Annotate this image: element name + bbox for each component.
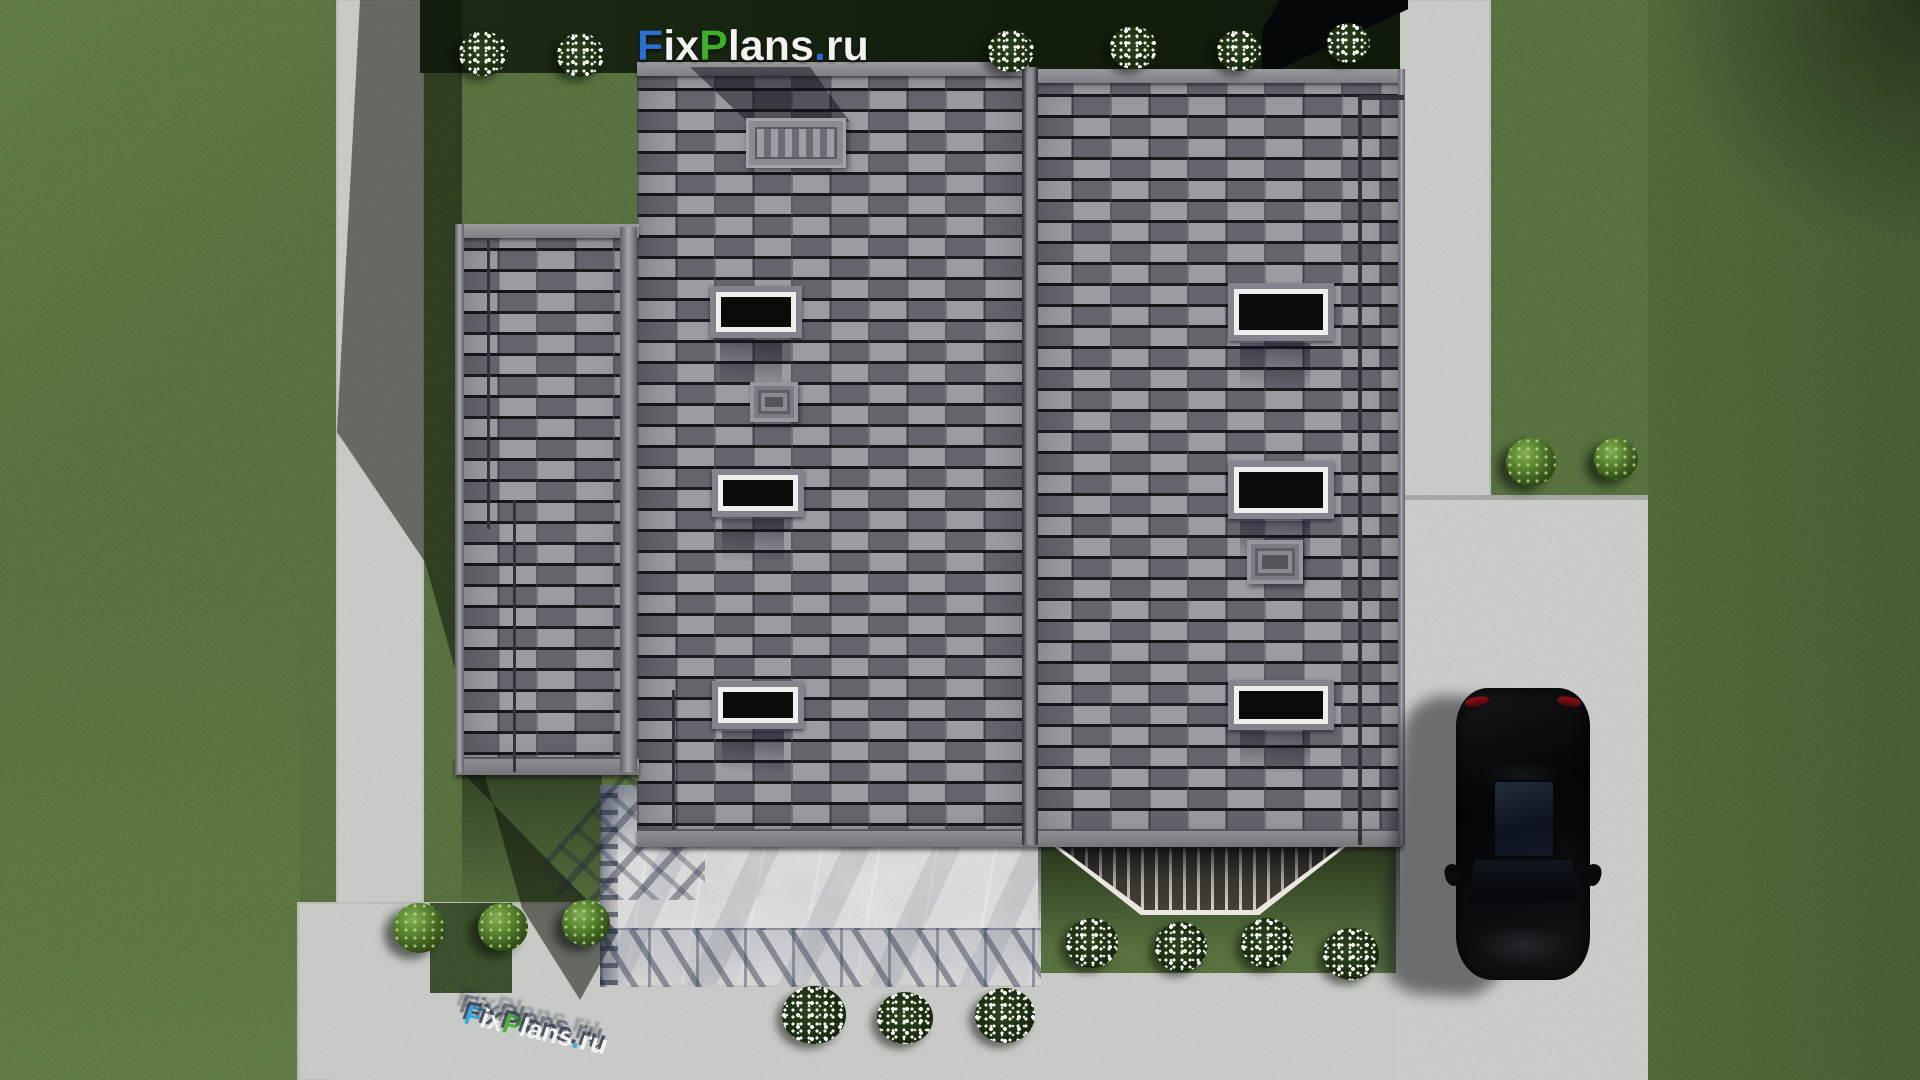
- car-windshield: [1467, 860, 1579, 902]
- flower-bed: [1327, 23, 1370, 63]
- flower-bed: [459, 31, 508, 76]
- roof-window-glass: [718, 687, 798, 723]
- fixplans-watermark: FixPlans.ru: [637, 22, 869, 71]
- roof-center: [637, 67, 1029, 845]
- roof-vent: [750, 382, 798, 422]
- roof-window-glass: [1234, 686, 1328, 724]
- roof-vent-frame: [758, 390, 790, 414]
- flower-bed: [1323, 928, 1379, 980]
- flower-bed: [1155, 922, 1207, 972]
- gutter-elbow: [1358, 95, 1404, 100]
- shrub: [1594, 438, 1638, 480]
- shrub: [1506, 438, 1556, 486]
- roof-window-glass: [1234, 289, 1328, 335]
- roof-window: [1228, 461, 1334, 519]
- roof-window-shadow: [1240, 343, 1310, 389]
- eave-center-bottom: [637, 829, 1029, 847]
- flower-bed: [975, 988, 1035, 1043]
- roof-right: [1033, 73, 1403, 845]
- logo-letter: P: [699, 22, 728, 70]
- eave-right-top: [1029, 69, 1403, 83]
- eave-wing-bottom: [455, 757, 639, 775]
- roof-window-glass: [1234, 467, 1328, 513]
- roof-vent: [1247, 540, 1303, 584]
- aerial-house-render: FixPlans.ru FixPlans.ru: [0, 0, 1920, 1080]
- roof-window: [1228, 283, 1334, 341]
- roof-window: [712, 681, 804, 729]
- logo-letter: lans: [728, 22, 814, 70]
- chimney: [746, 118, 846, 168]
- shrub: [393, 903, 445, 953]
- logo-letter: ix: [663, 22, 699, 70]
- flower-bed: [1066, 918, 1118, 968]
- flower-bed: [1241, 918, 1293, 968]
- eave-right-bottom: [1029, 829, 1403, 847]
- roof-window-shadow: [722, 519, 784, 561]
- flower-bed: [557, 33, 604, 77]
- flower-bed: [782, 986, 846, 1044]
- flower-bed: [1110, 26, 1157, 69]
- flower-bed: [1217, 30, 1261, 71]
- roof-window: [712, 469, 804, 517]
- roof-window-shadow: [720, 340, 782, 386]
- roof-window: [710, 286, 802, 338]
- roof-left-wing: [459, 227, 637, 772]
- flower-bed: [877, 992, 933, 1044]
- roof-window-shadow: [722, 731, 784, 771]
- eave-wing-left: [455, 224, 464, 773]
- chimney-grate: [755, 127, 837, 159]
- roof-vent-frame: [1255, 548, 1295, 576]
- logo-letter: ru: [826, 22, 869, 70]
- roof-window-glass: [718, 475, 798, 511]
- eave-wing-top: [455, 224, 639, 238]
- roof-vent-core: [1262, 555, 1288, 569]
- ridge-wing: [620, 227, 637, 772]
- roof-window: [1228, 680, 1334, 730]
- car-sunroof: [1493, 780, 1555, 858]
- roof-seam: [487, 239, 490, 529]
- logo-letter: F: [637, 22, 663, 70]
- roof-valley: [1022, 67, 1038, 845]
- roof-vent-core: [765, 397, 783, 407]
- car: [1456, 688, 1590, 980]
- gutter-pipe: [1358, 95, 1362, 845]
- flower-bed: [988, 30, 1034, 72]
- logo-letter: .: [814, 22, 826, 70]
- roof-window-shadow: [1240, 732, 1310, 772]
- shrub: [478, 903, 528, 951]
- shrub: [562, 900, 610, 946]
- roof-seam: [672, 690, 675, 830]
- roof-window-glass: [716, 292, 796, 332]
- roof-seam: [513, 500, 516, 772]
